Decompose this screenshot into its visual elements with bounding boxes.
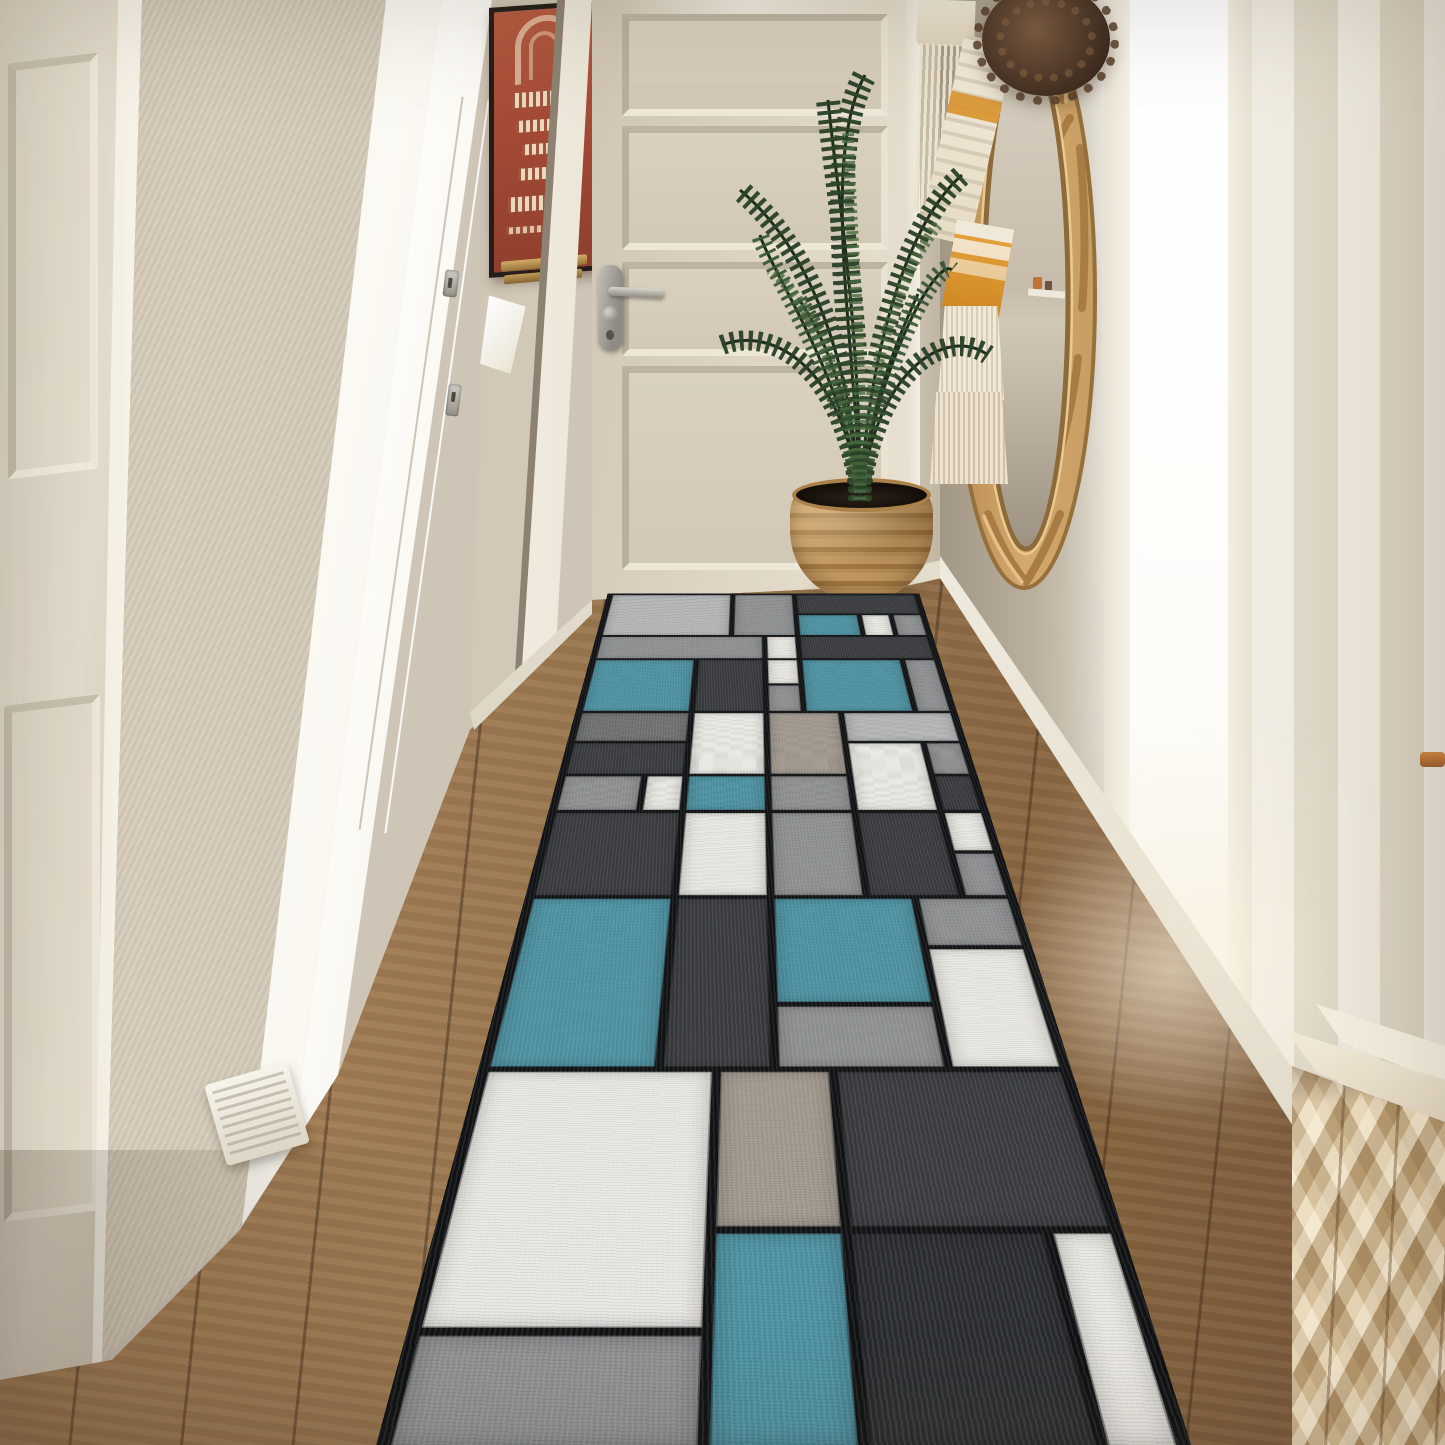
rug-block: [603, 595, 731, 635]
door-keyhole: [606, 330, 614, 340]
reflected-item: [1045, 281, 1052, 290]
wood-peg: [1420, 752, 1445, 767]
rug-block: [767, 637, 797, 659]
rug-block: [844, 713, 959, 741]
areca-palm: [700, 40, 1000, 600]
rug-block: [945, 813, 993, 850]
rug-block: [955, 853, 1007, 895]
rug-block: [596, 637, 762, 659]
rug-block: [695, 660, 764, 711]
rug-block: [390, 1336, 702, 1445]
rug-block: [769, 713, 846, 774]
rug-block: [771, 776, 852, 810]
pampas-pompom: [982, 0, 1110, 96]
rug-block: [490, 899, 671, 1067]
rug-block: [678, 813, 767, 895]
rug-block: [858, 813, 959, 895]
rug-block: [422, 1072, 713, 1328]
rug-block: [935, 776, 980, 810]
rug-block: [768, 685, 800, 711]
hallway-photo: [0, 0, 1445, 1445]
door-panel-molding: [8, 52, 98, 479]
rug-block: [798, 615, 861, 635]
rug-block: [768, 660, 799, 683]
floor-shadow: [0, 1150, 420, 1445]
reflected-item: [1033, 277, 1042, 289]
rug-block: [535, 813, 680, 895]
rug-block: [566, 743, 686, 774]
rug-block: [710, 1234, 858, 1445]
cabinet-faceted-front: [1292, 1064, 1445, 1445]
runner-rug: [372, 593, 1196, 1445]
door-lock-knob: [602, 306, 618, 322]
rug-block: [800, 637, 934, 659]
runner-rug-area: [372, 592, 1196, 1445]
rug-block: [893, 615, 926, 635]
rug-block: [774, 899, 931, 1003]
rug-block: [796, 595, 919, 614]
rug-block: [663, 899, 770, 1067]
rug-block: [848, 743, 937, 810]
rug-block: [837, 1072, 1109, 1227]
door-latch: [445, 383, 462, 416]
rug-block: [862, 615, 894, 635]
rug-block: [686, 776, 766, 810]
rug-block: [851, 1234, 1097, 1445]
rug-block: [643, 776, 683, 810]
rug-block: [919, 899, 1023, 946]
rug-block: [929, 949, 1060, 1066]
door-panel-molding: [4, 694, 100, 1222]
rug-block: [689, 713, 765, 774]
rug-block: [927, 743, 970, 774]
rug-block: [905, 660, 950, 711]
rug-block: [734, 595, 795, 635]
rug-block: [777, 1006, 944, 1066]
rug-block: [583, 660, 694, 711]
rug-block: [575, 713, 689, 741]
rug-block: [716, 1072, 840, 1227]
rug-block: [557, 776, 642, 810]
rug-block: [772, 813, 863, 895]
rug-block: [802, 660, 913, 711]
